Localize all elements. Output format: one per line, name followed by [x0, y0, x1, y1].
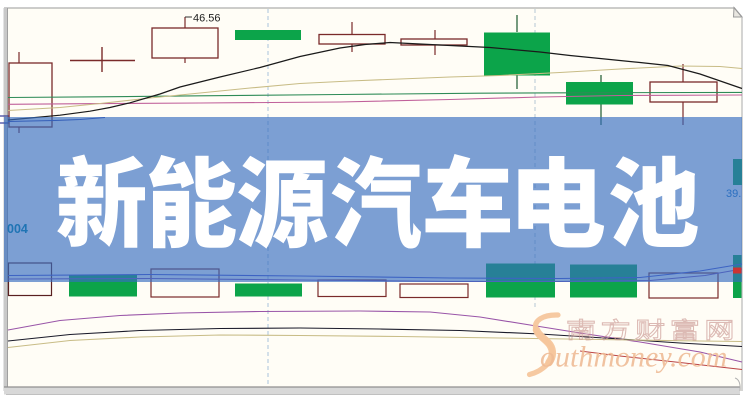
svg-text:39.: 39.: [726, 188, 741, 200]
svg-text:outhmoney.com: outhmoney.com: [540, 341, 727, 374]
svg-text:46.56: 46.56: [193, 13, 221, 25]
svg-text:004: 004: [7, 222, 28, 236]
